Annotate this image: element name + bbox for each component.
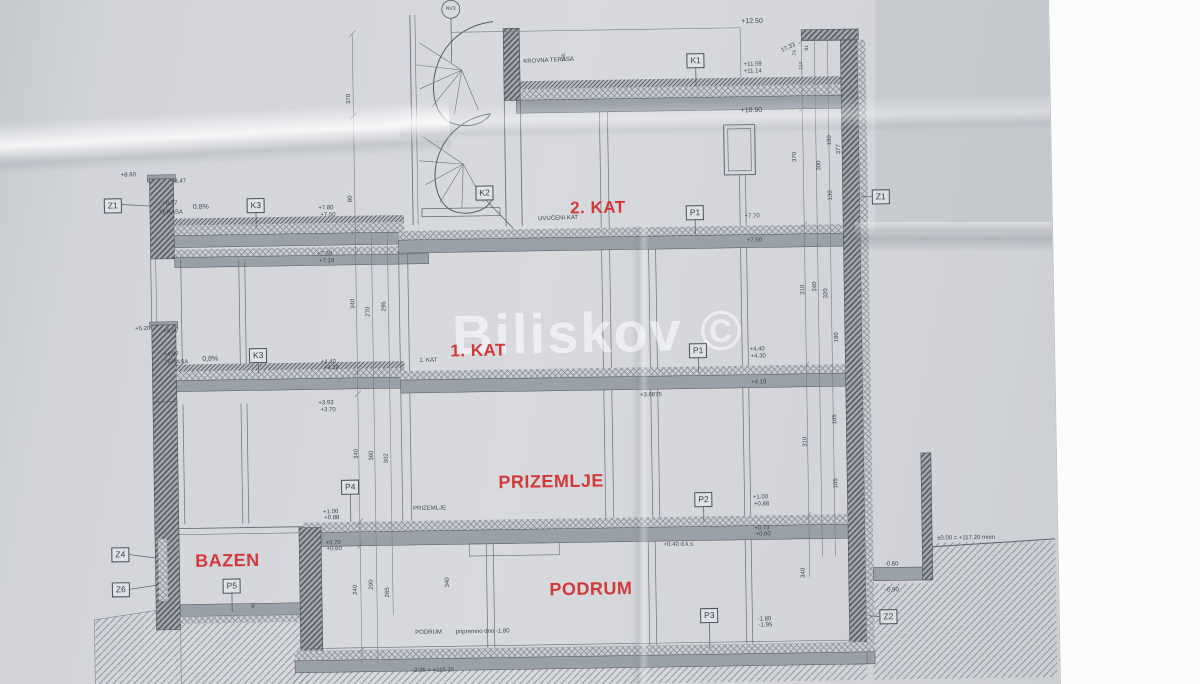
tag-box: Z1 (104, 198, 122, 213)
room-label: 1. KAT (450, 340, 506, 361)
dimension-label: -1.95 (759, 622, 773, 628)
room-label: BAZEN (195, 550, 260, 572)
dimension-label: 0,8% (193, 204, 209, 211)
dimension-label: 91 (805, 45, 810, 51)
dimension-label: +5.20 (135, 326, 150, 332)
dimension-label: +4.10 (751, 379, 766, 385)
dimension-label: 0,8% (202, 355, 218, 362)
dimension-label: +3.93 (318, 400, 333, 406)
dimension-label: 74 (793, 50, 798, 56)
dimension-label: +11.14 (744, 68, 762, 74)
dimension-label: +4.97 (164, 352, 179, 358)
dimension-label: +4.30 (751, 353, 766, 359)
photographed-floor-plan: Biliskov © 2. KAT1. KATPRIZEMLJEPODRUMBA… (0, 0, 1200, 684)
dimension-label: 130 (828, 190, 834, 200)
dimension-label: +4.10 (324, 365, 339, 371)
dimension-label: 340 (801, 568, 807, 578)
dimension-label: +0.40 d.k.s. (664, 542, 695, 548)
dimension-label: +4.40 (750, 346, 765, 352)
dimension-label: 295 (381, 301, 387, 311)
dimension-label: 105 (833, 478, 839, 488)
dimension-label: 290 (369, 580, 375, 590)
dimension-label: PRIZEMLJE (413, 505, 446, 512)
room-label: PRIZEMLJE (498, 470, 604, 493)
tag-box: P1 (686, 205, 705, 220)
dimension-label: +0.60 (755, 531, 770, 537)
tag-box: P1 (689, 343, 708, 358)
dimension-label: -0.90 (885, 587, 899, 593)
tag-box: Z1 (872, 189, 890, 204)
dimension-label: +8.60 (121, 172, 136, 178)
dimension-label: 40 (252, 603, 257, 609)
dimension-label: 180 (827, 135, 833, 145)
dimension-label: +5.07 (163, 329, 178, 335)
dimension-label: 310 (803, 437, 809, 447)
dimension-label: 340 (812, 282, 818, 292)
dimension-label: 340 (350, 299, 356, 309)
dimension-label: +12.50 (741, 18, 763, 25)
dimension-label: +1.00 (753, 494, 768, 500)
dimension-label: +0.60 (327, 546, 342, 552)
annotation-overlay: 2. KAT1. KATPRIZEMLJEPODRUMBAZENK1K2K3K3… (0, 0, 1200, 684)
dimension-label: +7.30 (317, 251, 332, 257)
dimension-label: 105 (832, 414, 838, 424)
dimension-label: 80 (348, 196, 354, 203)
dimension-label: +11.59 (744, 61, 762, 67)
dimension-label: +7.10 (319, 258, 334, 264)
dimension-label: 265 (385, 587, 391, 597)
dimension-label: +3.70 (320, 407, 335, 413)
dimension-label: 114 (799, 62, 804, 70)
dimension-label: +0.88 (754, 501, 769, 507)
dimension-label: +8.47 (171, 178, 186, 184)
dimension-label: 270 (365, 307, 371, 317)
dimension-label: 377 (836, 144, 842, 154)
dimension-label: 370 (792, 152, 798, 162)
tag-box: K2 (475, 185, 494, 200)
tag-box: P4 (341, 480, 360, 495)
dimension-label: 302 (384, 453, 390, 463)
dimension-label: +7.50 (747, 237, 762, 243)
dimension-label: UVUČENI KAT (538, 215, 578, 222)
dimension-label: 320 (823, 288, 829, 298)
room-label: PODRUM (549, 578, 632, 600)
tag-box: Z2 (879, 609, 897, 624)
dimension-label: +7.80 (318, 205, 333, 211)
dimension-label: TERASA (159, 210, 183, 216)
dimension-label: 360 (369, 451, 375, 461)
dimension-label: PODRUM (415, 630, 442, 636)
dimension-label: pripremno dno -1,80 (456, 628, 510, 635)
dimension-label: 180 (834, 332, 840, 342)
dimension-label: +7.70 (744, 213, 759, 219)
dimension-label: 135 (562, 53, 567, 61)
dimension-label: +10.90 (741, 107, 763, 114)
room-label: 2. KAT (570, 198, 626, 219)
dimension-label: -2.05 = +115.15 (412, 667, 454, 674)
dimension-label: NV3 (446, 7, 456, 12)
tag-box: Z4 (111, 547, 129, 562)
dimension-label: -0.60 (885, 561, 899, 567)
dimension-label: 1. KAT (419, 358, 437, 364)
dimension-label: +8.37 (162, 201, 177, 207)
dimension-label: ±0.00 = +117.20 mnm (937, 535, 995, 542)
tag-box: K3 (249, 348, 268, 363)
dimension-label: TERASA (164, 359, 188, 365)
tag-box: P3 (700, 608, 719, 623)
dimension-label: 240 (353, 585, 359, 595)
dimension-label: 310 (800, 285, 806, 295)
dimension-label: 370 (346, 94, 352, 104)
tag-box: P2 (694, 492, 713, 507)
tag-box: K3 (247, 198, 266, 213)
dimension-label: +3.8875 (640, 392, 662, 398)
dimension-label: +0.88 (324, 515, 339, 521)
dimension-label: 340 (445, 577, 451, 587)
photo-background-edge (1048, 0, 1200, 684)
tag-box: P5 (222, 578, 241, 593)
dimension-label: +7.50 (320, 212, 335, 218)
dimension-label: 340 (354, 449, 360, 459)
tag-box: K1 (686, 53, 705, 68)
tag-box: Z6 (112, 582, 130, 597)
dimension-label: 300 (816, 160, 822, 170)
